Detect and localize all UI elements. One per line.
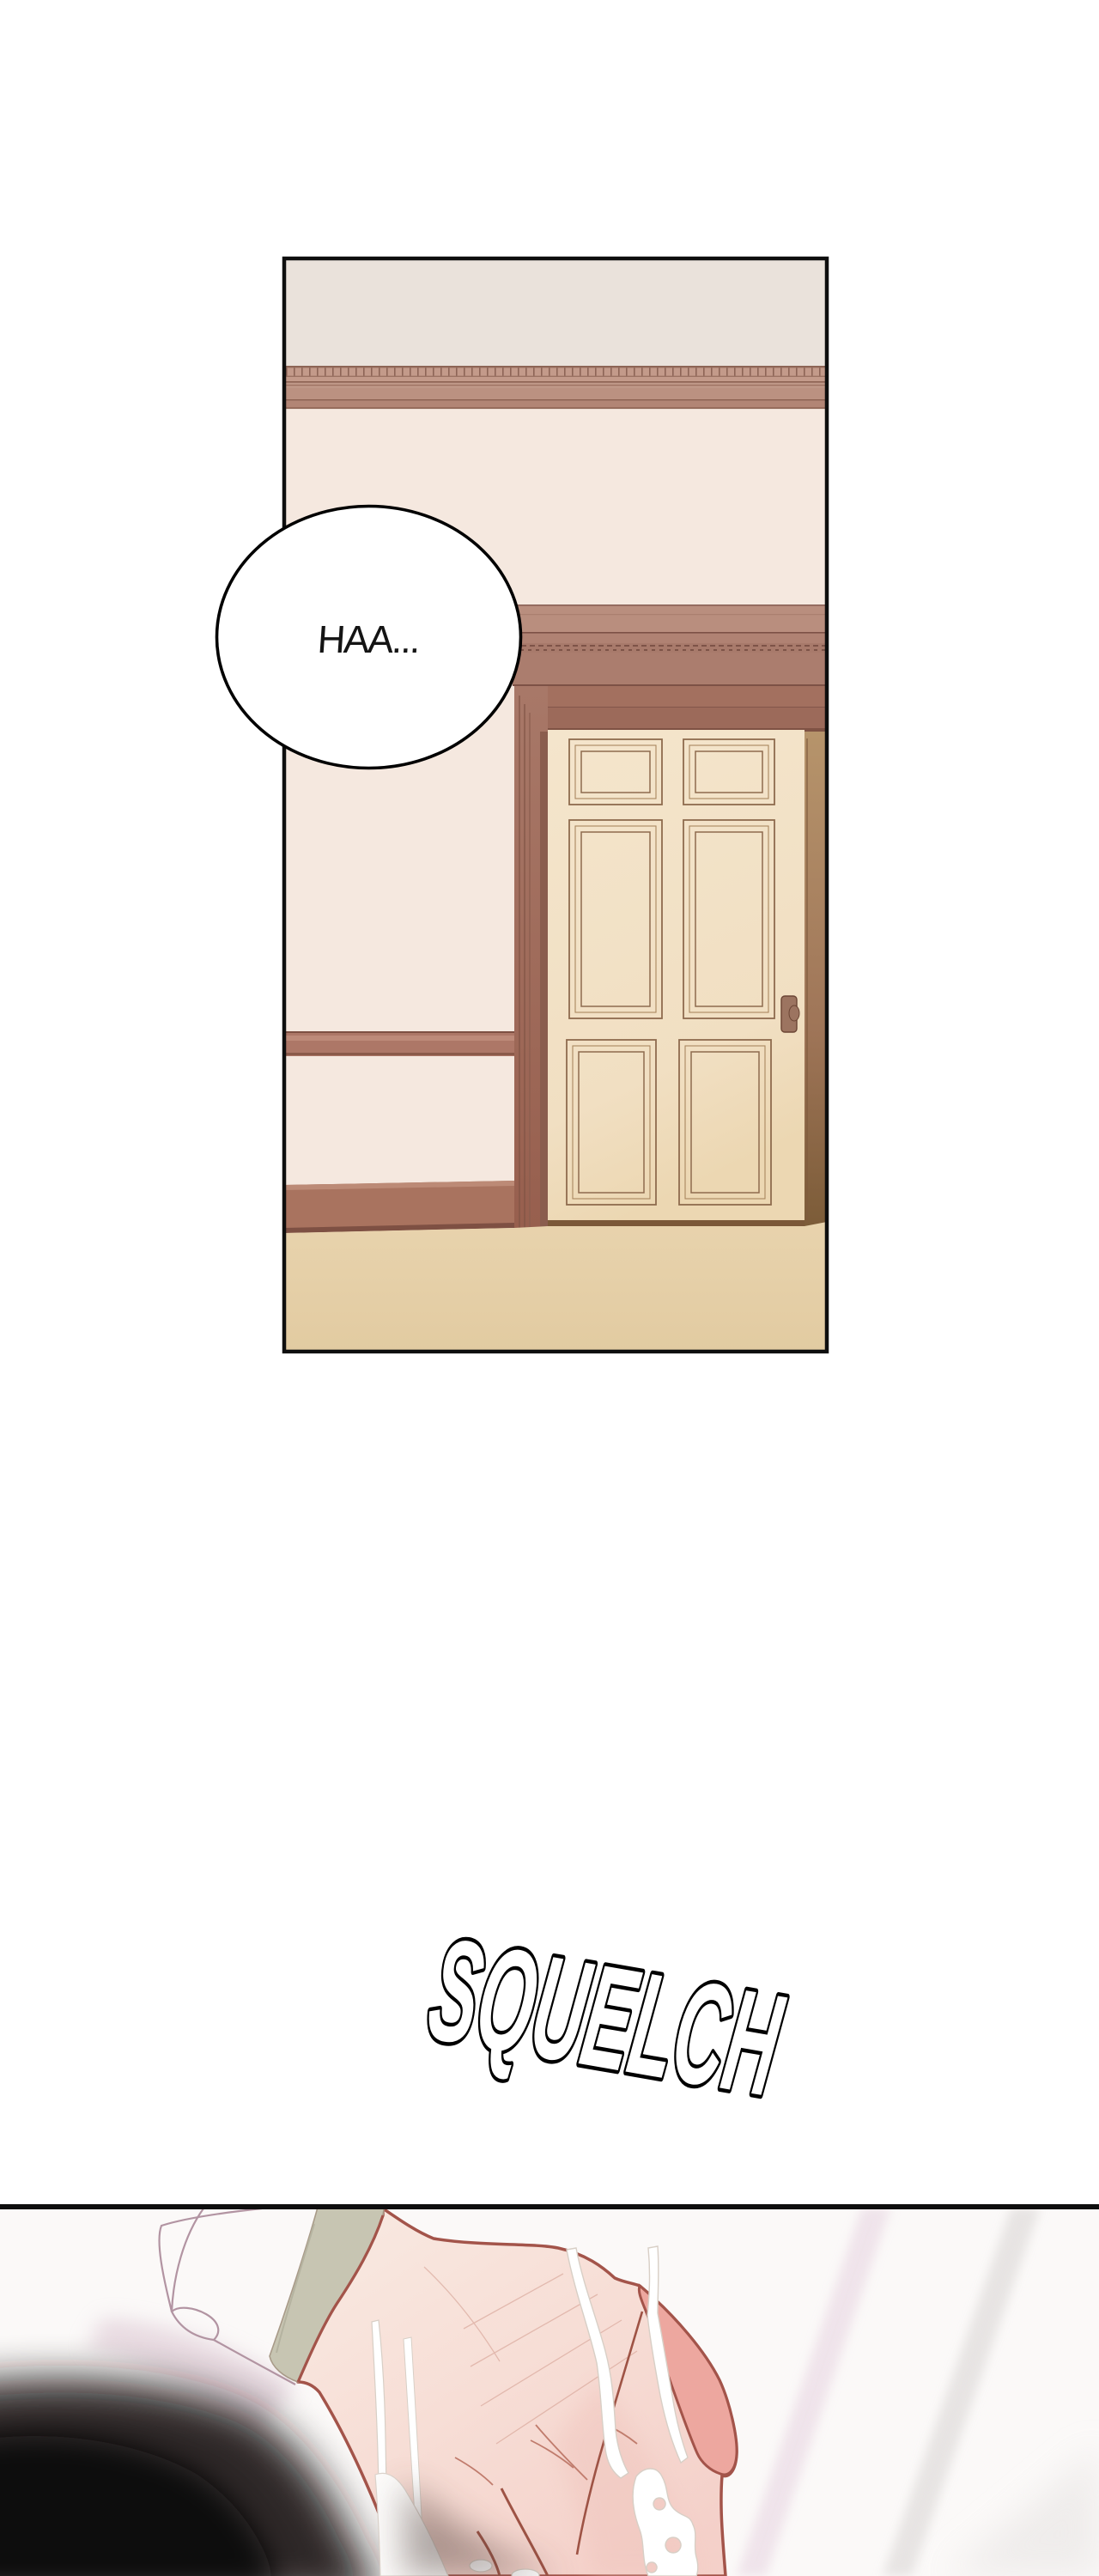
svg-text:HAA...: HAA... (316, 617, 421, 661)
